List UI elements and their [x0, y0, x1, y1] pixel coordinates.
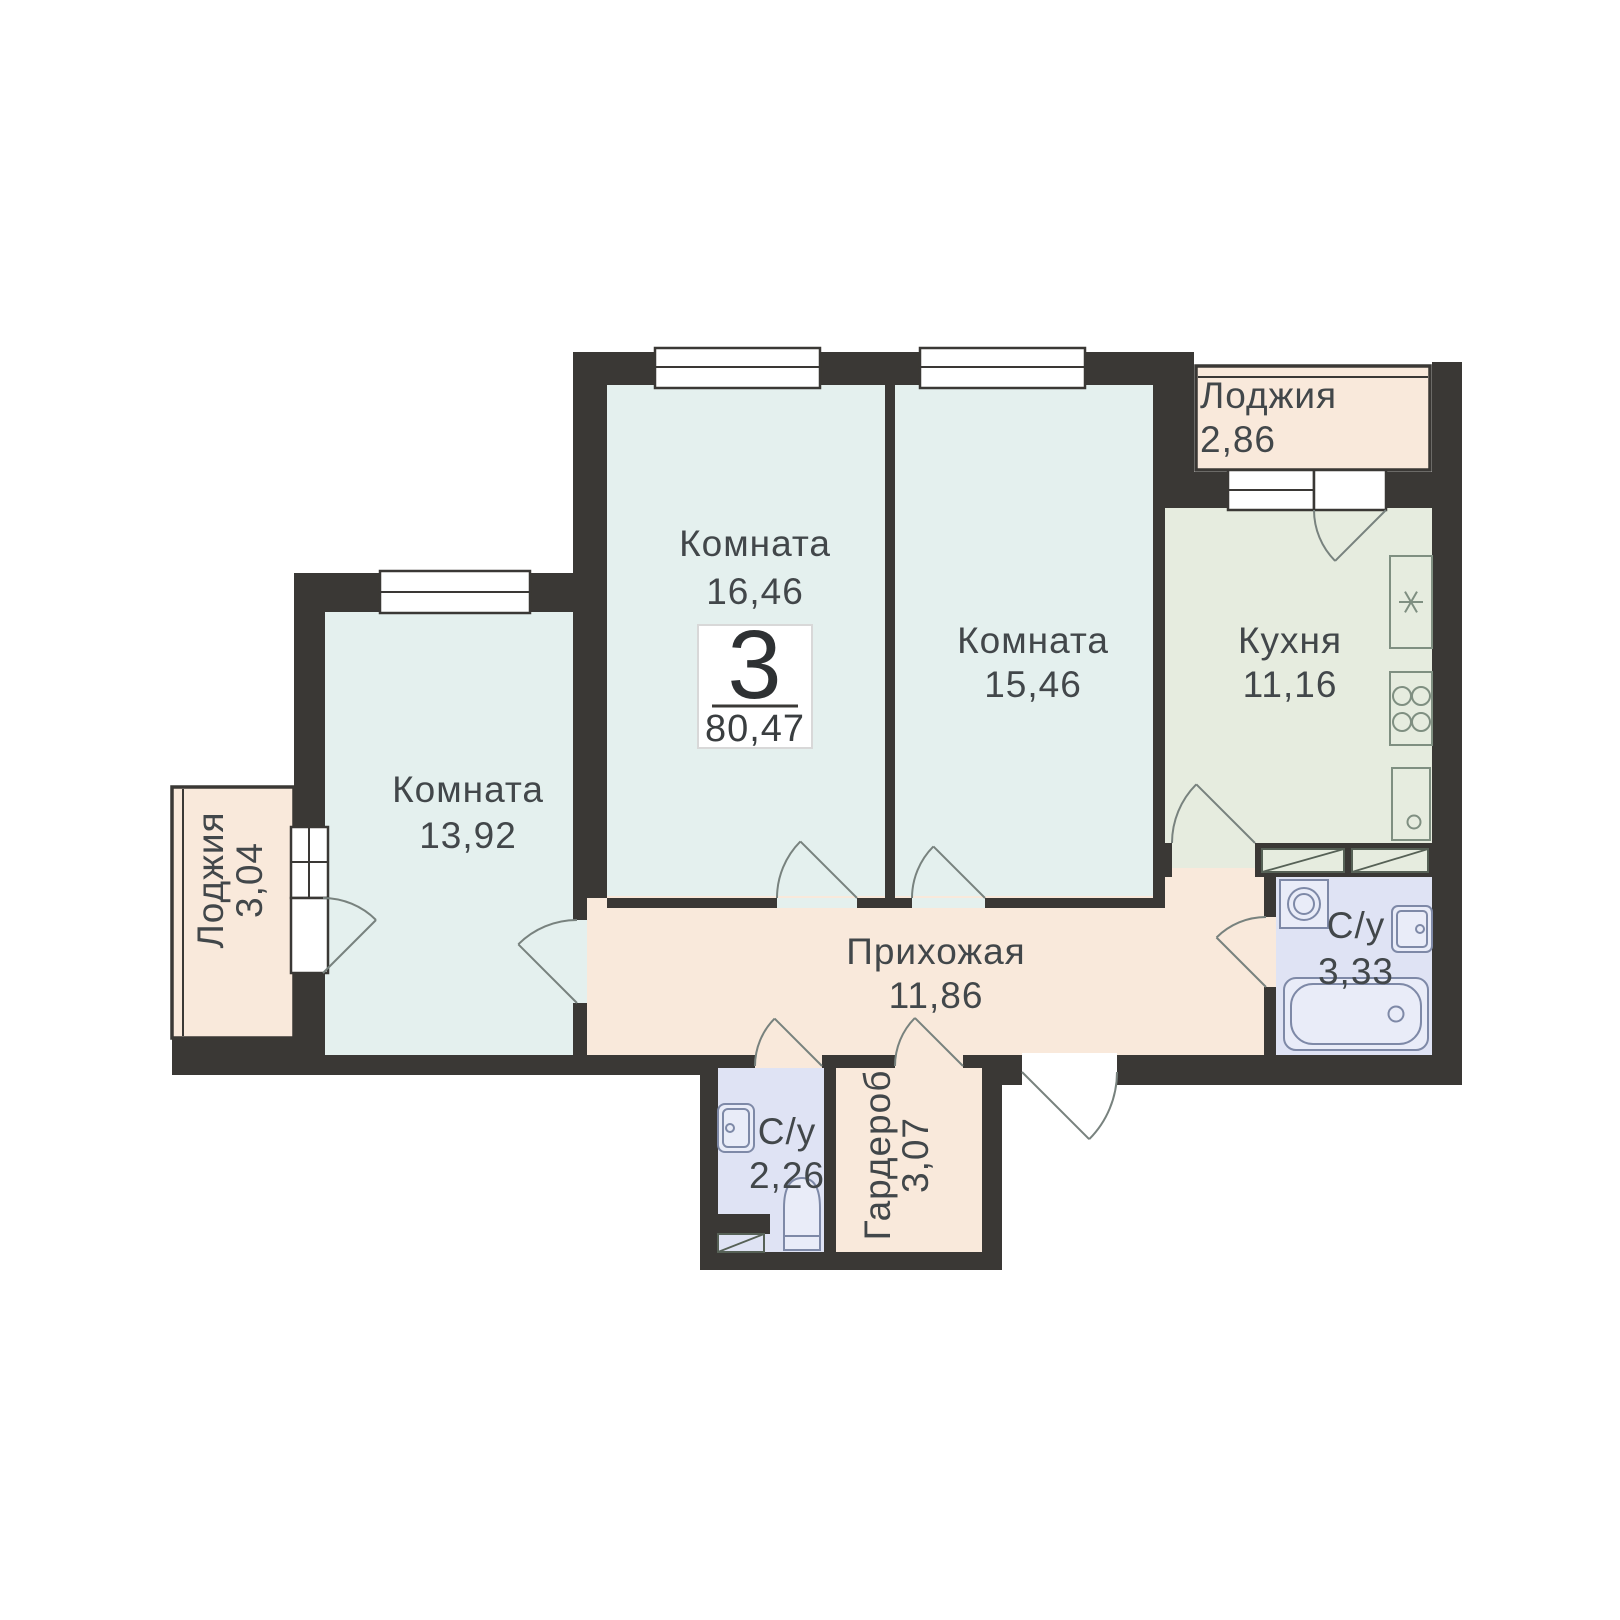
room-c-area: 13,92 — [419, 815, 517, 856]
kitchen-cabinet-icon — [1262, 849, 1428, 872]
entrance-opening — [1022, 1053, 1117, 1087]
floor-plan: Комната 16,46 Комната 15,46 Кухня 11,16 … — [0, 0, 1620, 1620]
floor-plan-page: Комната 16,46 Комната 15,46 Кухня 11,16 … — [0, 0, 1620, 1620]
hallway-label: Прихожая — [846, 931, 1025, 972]
wardrobe-area: 3,07 — [895, 1117, 936, 1193]
door-opening-bathroom-main — [1264, 917, 1276, 987]
bathroom-small-area: 2,26 — [749, 1155, 825, 1196]
room-b-area: 15,46 — [984, 664, 1082, 705]
window-room-a — [655, 348, 820, 388]
washing-machine-icon — [1280, 880, 1328, 928]
kitchen-area: 11,16 — [1243, 664, 1338, 705]
balcony-door-kitchen — [1314, 470, 1386, 510]
loggia-left-area: 3,04 — [229, 842, 270, 918]
shaft-hatch — [718, 1234, 764, 1252]
window-loggia-top — [1228, 470, 1314, 510]
window-room-c — [380, 571, 530, 613]
room-c-label: Комната — [392, 769, 544, 810]
bathroom-main-area: 3,33 — [1318, 951, 1394, 992]
door-opening-room-b — [912, 898, 985, 908]
apartment-badge: 3 80,47 — [698, 610, 812, 750]
room-b-label: Комната — [957, 620, 1109, 661]
badge-rooms-count: 3 — [728, 610, 783, 719]
door-opening-room-c — [573, 920, 587, 1003]
loggia-left-label: Лоджия — [190, 811, 231, 948]
sink-icon — [1392, 906, 1432, 952]
hallway-area: 11,86 — [889, 975, 984, 1016]
sink-icon — [718, 1104, 754, 1152]
room-a-label: Комната — [679, 523, 831, 564]
balcony-door-left — [291, 898, 328, 973]
wardrobe-label: Гардероб — [857, 1070, 898, 1241]
bathroom-small-label: С/у — [758, 1111, 817, 1152]
door-opening-room-a — [777, 898, 857, 908]
window-room-b — [920, 348, 1085, 388]
loggia-top-label: Лоджия — [1200, 375, 1337, 416]
bathroom-small-wall-step — [700, 1214, 770, 1234]
loggia-top-area: 2,86 — [1200, 419, 1276, 460]
window-loggia-left — [291, 827, 328, 898]
bathroom-main-label: С/у — [1327, 905, 1386, 946]
room-a-area: 16,46 — [706, 571, 804, 612]
badge-total-area: 80,47 — [705, 708, 805, 750]
kitchen-label: Кухня — [1238, 620, 1342, 661]
